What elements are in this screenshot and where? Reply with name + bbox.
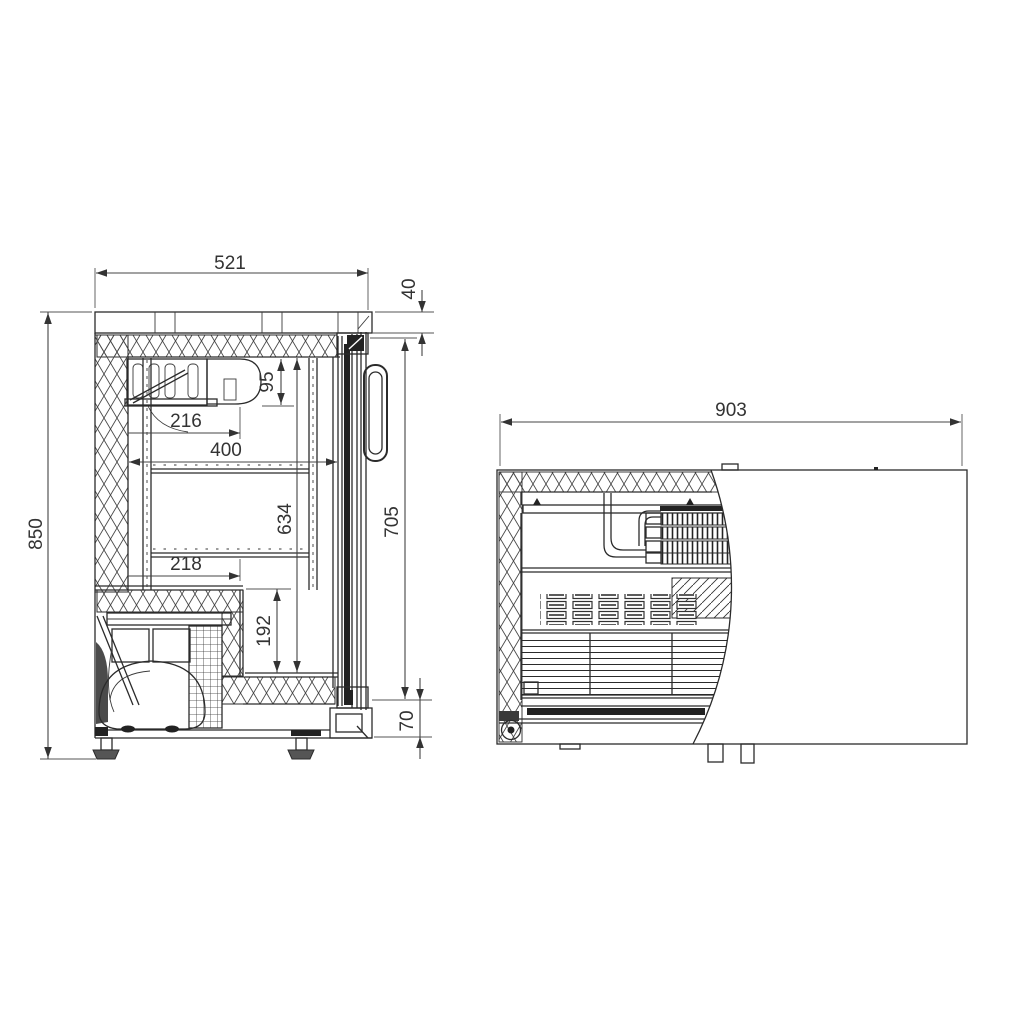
dim-label-shelf-inset-upper: 216 [170, 411, 202, 432]
dim-label-overall-width: 903 [715, 400, 747, 421]
insulation-left [499, 472, 522, 742]
dim-label-shelf-inset-lower: 218 [170, 554, 202, 575]
hinge-tab [722, 464, 738, 470]
plan-view-dimensions: 903 [500, 400, 962, 466]
shelf-upper [151, 465, 309, 473]
dim-label-worktop-width: 521 [214, 253, 246, 274]
door-gasket [344, 344, 350, 700]
shelf-rail-right [309, 358, 317, 590]
foot-right [288, 738, 314, 759]
louver-panel [521, 630, 743, 698]
cutaway-interior [499, 472, 743, 742]
relay-box [153, 629, 190, 662]
door [333, 332, 387, 710]
dim-label-overall-height: 850 [26, 518, 47, 550]
vent-grille [540, 594, 697, 625]
compressor-compartment [96, 613, 231, 733]
dim-label-evaporator-depth: 95 [257, 371, 278, 392]
door-handle [364, 365, 387, 461]
plan-foot-right [741, 744, 754, 763]
insulation-top [499, 472, 739, 492]
dim-label-plinth-height: 70 [397, 710, 418, 731]
dim-label-door-height: 705 [382, 506, 403, 538]
drain-hose [96, 642, 108, 724]
dim-label-interior-height: 634 [275, 503, 296, 535]
bottom-tab [560, 744, 580, 749]
dim-label-base-step-height: 192 [254, 615, 275, 647]
refrigerant-pipe [604, 493, 661, 557]
base-plinth [95, 708, 372, 738]
side-section-view: 521 40 850 95 216 [26, 253, 434, 759]
fan-scroll [207, 359, 261, 404]
top-plan-view: 903 [497, 400, 967, 763]
technical-drawing-page: 521 40 850 95 216 [0, 0, 1024, 1024]
plan-foot-left [708, 744, 723, 762]
foot-left [93, 738, 119, 759]
refrigerator-dimension-drawing: 521 40 850 95 216 [0, 0, 1024, 1024]
relay-box [112, 629, 149, 662]
worktop [95, 312, 372, 333]
dim-label-worktop-thickness: 40 [399, 278, 420, 299]
dim-label-interior-depth: 400 [210, 440, 242, 461]
